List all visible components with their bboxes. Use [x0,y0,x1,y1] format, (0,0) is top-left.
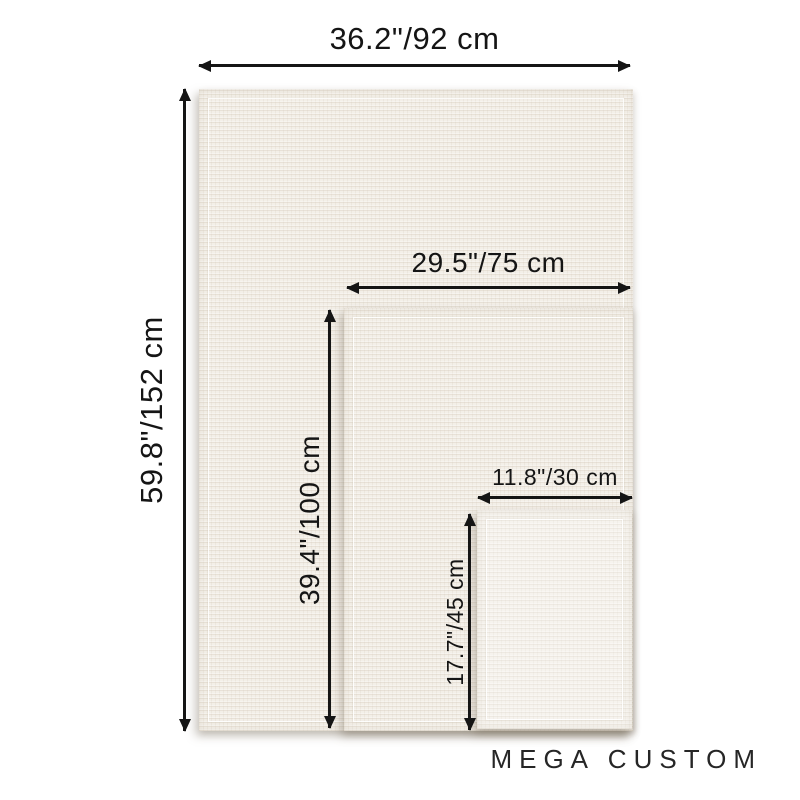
small-width-arrow [478,496,632,499]
arrowhead-down-icon [324,716,336,729]
arrowhead-left-icon [477,492,490,504]
large-height-arrow [183,89,186,731]
medium-height-arrow [328,310,331,728]
arrowhead-up-icon [179,88,191,101]
small-height-arrow [468,514,471,730]
medium-width-arrow [347,286,630,289]
large-width-arrow [199,64,630,67]
arrowhead-up-icon [464,513,476,526]
arrowhead-left-icon [198,60,211,72]
arrowhead-right-icon [620,492,633,504]
brand-wordmark: MEGA CUSTOM [490,744,762,775]
canvas-small [477,510,632,729]
arrowhead-right-icon [618,60,631,72]
arrowhead-down-icon [179,719,191,732]
large-height-label: 59.8"/152 cm [131,89,173,731]
size-chart: 36.2"/92 cm 59.8"/152 cm 29.5"/75 cm 39.… [0,0,800,800]
large-width-label: 36.2"/92 cm [199,18,630,60]
arrowhead-up-icon [324,309,336,322]
arrowhead-right-icon [618,282,631,294]
medium-width-label: 29.5"/75 cm [347,243,630,283]
small-width-label: 11.8"/30 cm [478,459,632,495]
arrowhead-down-icon [464,718,476,731]
medium-height-label: 39.4"/100 cm [290,311,330,729]
arrowhead-left-icon [346,282,359,294]
